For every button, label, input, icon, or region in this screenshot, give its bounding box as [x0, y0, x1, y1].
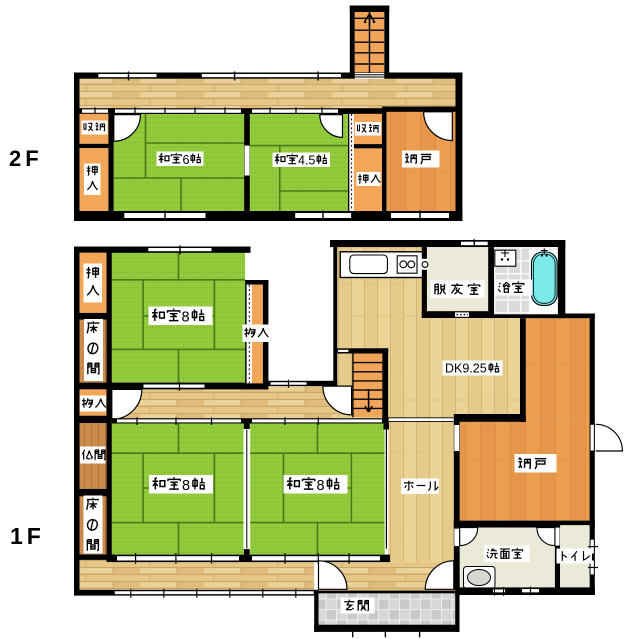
svg-text:DK9.25: DK9.25 [445, 362, 487, 376]
svg-text:8: 8 [182, 478, 190, 494]
svg-text:8: 8 [182, 310, 190, 326]
svg-text:4.5: 4.5 [298, 154, 315, 168]
svg-text:1F: 1F [10, 523, 45, 549]
svg-text:2F: 2F [9, 146, 43, 171]
svg-text:6: 6 [183, 153, 190, 167]
svg-text:8: 8 [317, 478, 325, 494]
